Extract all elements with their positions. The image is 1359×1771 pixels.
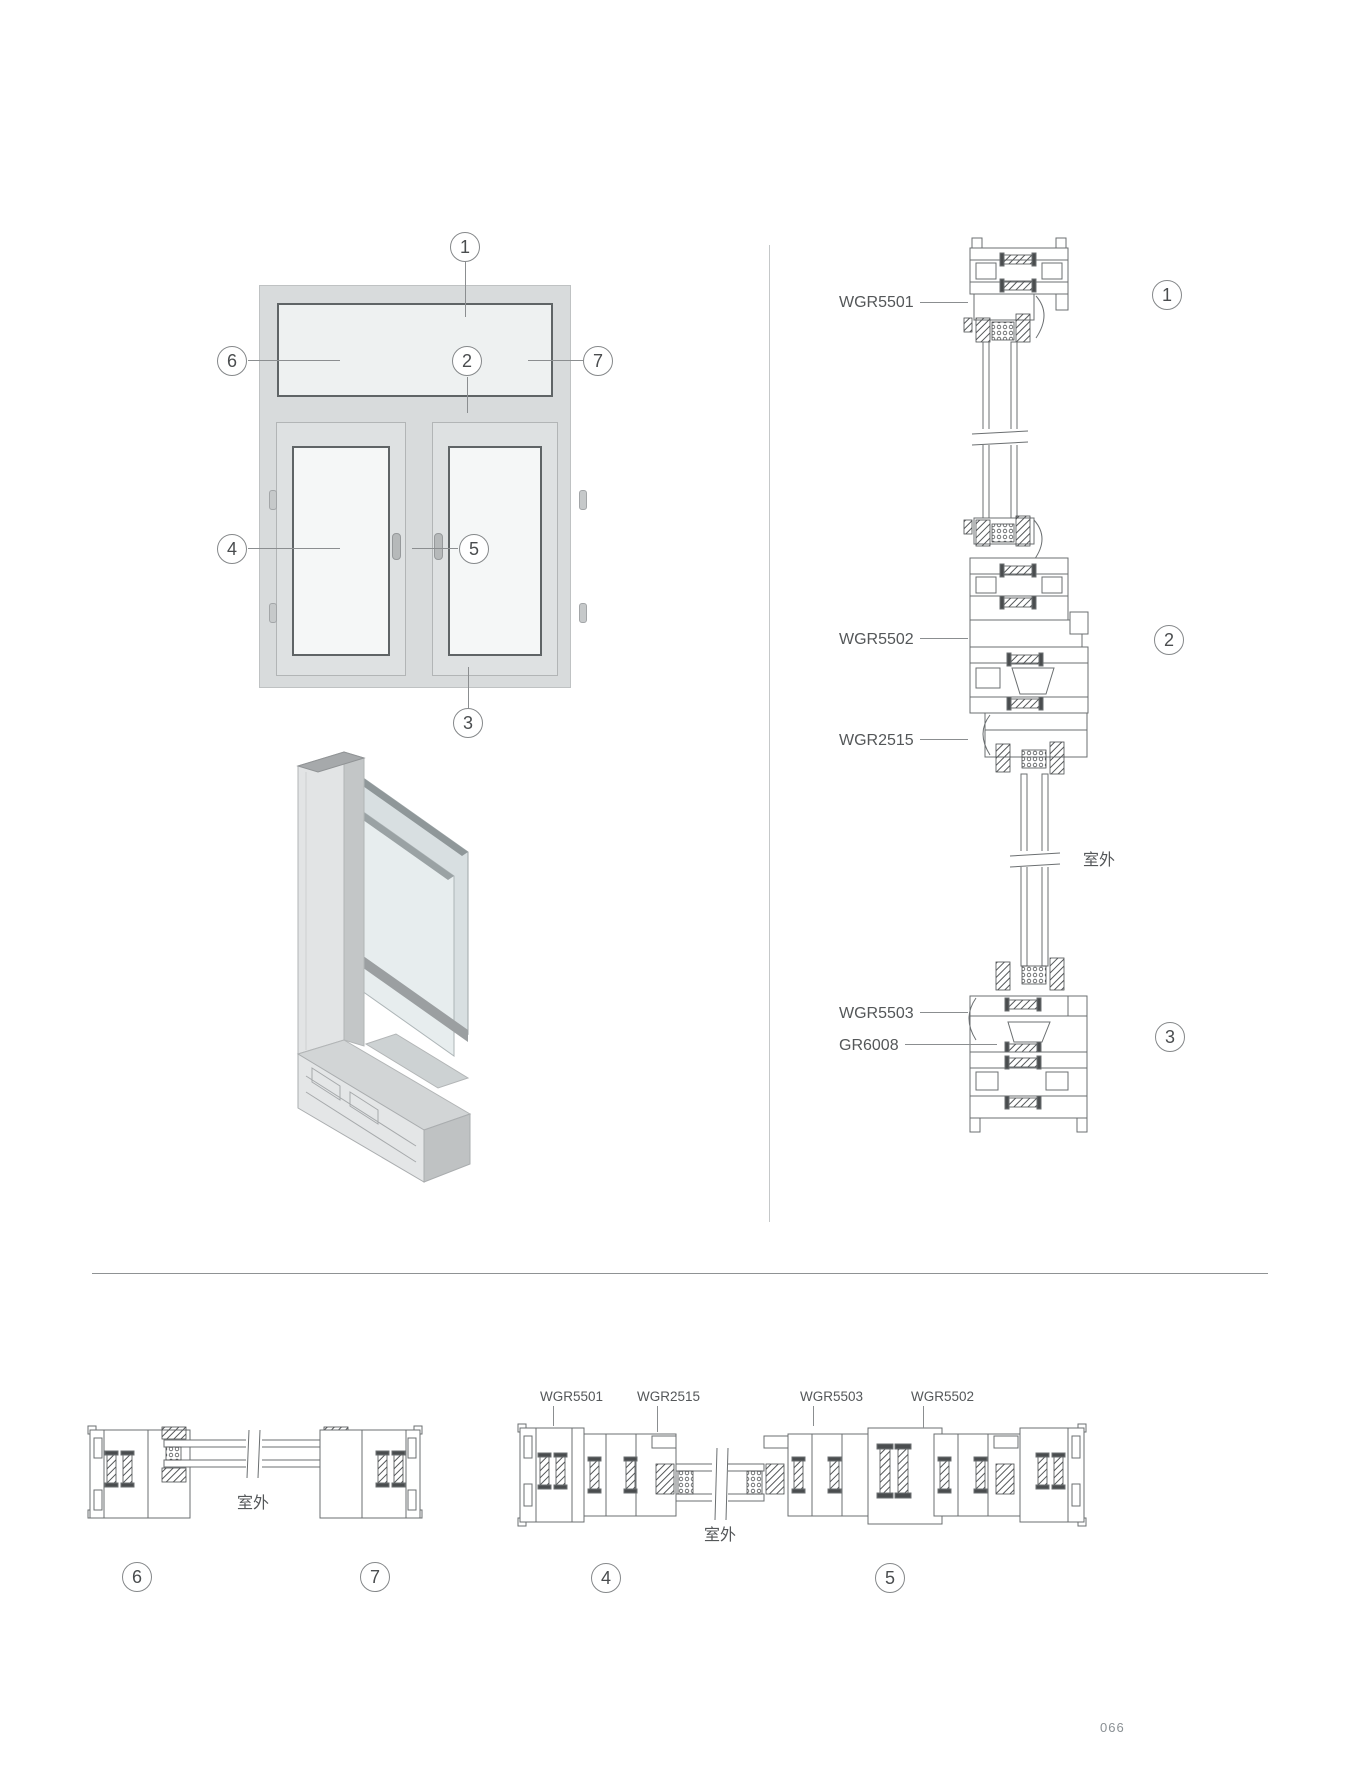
section-callout-5: 5 (875, 1563, 905, 1593)
right-sash-handle (434, 533, 443, 560)
hinge-left-bottom (269, 603, 277, 623)
profile-3d-render (298, 752, 470, 1182)
transom-glass (277, 303, 553, 397)
callout-7: 7 (583, 346, 613, 376)
label-wgr5501: WGR5501 (839, 294, 914, 312)
horizontal-section-right-drawing (518, 1424, 1086, 1526)
horizontal-divider (92, 1273, 1268, 1274)
leader-callout-3 (468, 667, 469, 708)
section-callout-6: 6 (122, 1562, 152, 1592)
label-wgr5502: WGR5502 (839, 631, 914, 649)
label-wgr5503: WGR5503 (839, 1005, 914, 1023)
leader-wgr5503 (920, 1012, 968, 1013)
leader-callout-1 (465, 262, 466, 317)
leader-callout-4 (248, 548, 340, 549)
label-outside-bottom-left: 室外 (237, 1495, 269, 1513)
section-callout-2: 2 (1154, 625, 1184, 655)
callout-6: 6 (217, 346, 247, 376)
tick-br-wgr5501 (553, 1406, 554, 1426)
label-br-wgr2515: WGR2515 (637, 1389, 700, 1405)
callout-4: 4 (217, 534, 247, 564)
left-sash-handle (392, 533, 401, 560)
label-br-wgr5503: WGR5503 (800, 1389, 863, 1405)
catalog-page: 1 2 6 7 4 5 3 (0, 0, 1359, 1771)
hinge-right-bottom (579, 603, 587, 623)
callout-1: 1 (450, 232, 480, 262)
vertical-divider (769, 245, 770, 1222)
hinge-right-top (579, 490, 587, 510)
callout-3: 3 (453, 708, 483, 738)
leader-wgr5501 (920, 302, 968, 303)
section-callout-1: 1 (1152, 280, 1182, 310)
left-sash-glass (292, 446, 390, 656)
leader-callout-2 (467, 377, 468, 413)
page-number: 066 (1100, 1720, 1125, 1735)
label-br-wgr5502: WGR5502 (911, 1389, 974, 1405)
tick-br-wgr2515 (657, 1406, 658, 1432)
label-br-wgr5501: WGR5501 (540, 1389, 603, 1405)
leader-wgr5502 (920, 638, 968, 639)
label-wgr2515: WGR2515 (839, 732, 914, 750)
label-outside-bottom-right: 室外 (704, 1527, 736, 1545)
tick-br-wgr5502 (923, 1406, 924, 1428)
section-callout-7: 7 (360, 1562, 390, 1592)
leader-callout-7 (528, 360, 583, 361)
section-callout-3: 3 (1155, 1022, 1185, 1052)
hinge-left-top (269, 490, 277, 510)
tick-br-wgr5503 (813, 1406, 814, 1426)
leader-callout-5 (412, 548, 458, 549)
callout-5: 5 (459, 534, 489, 564)
leader-gr6008 (905, 1044, 997, 1045)
label-outside-vertical: 室外 (1083, 852, 1115, 870)
technical-drawings (0, 0, 1359, 1771)
leader-callout-6 (248, 360, 340, 361)
section-callout-4: 4 (591, 1563, 621, 1593)
callout-2: 2 (452, 346, 482, 376)
leader-wgr2515 (920, 739, 968, 740)
label-gr6008: GR6008 (839, 1037, 899, 1055)
vertical-section-drawing (964, 238, 1088, 1132)
